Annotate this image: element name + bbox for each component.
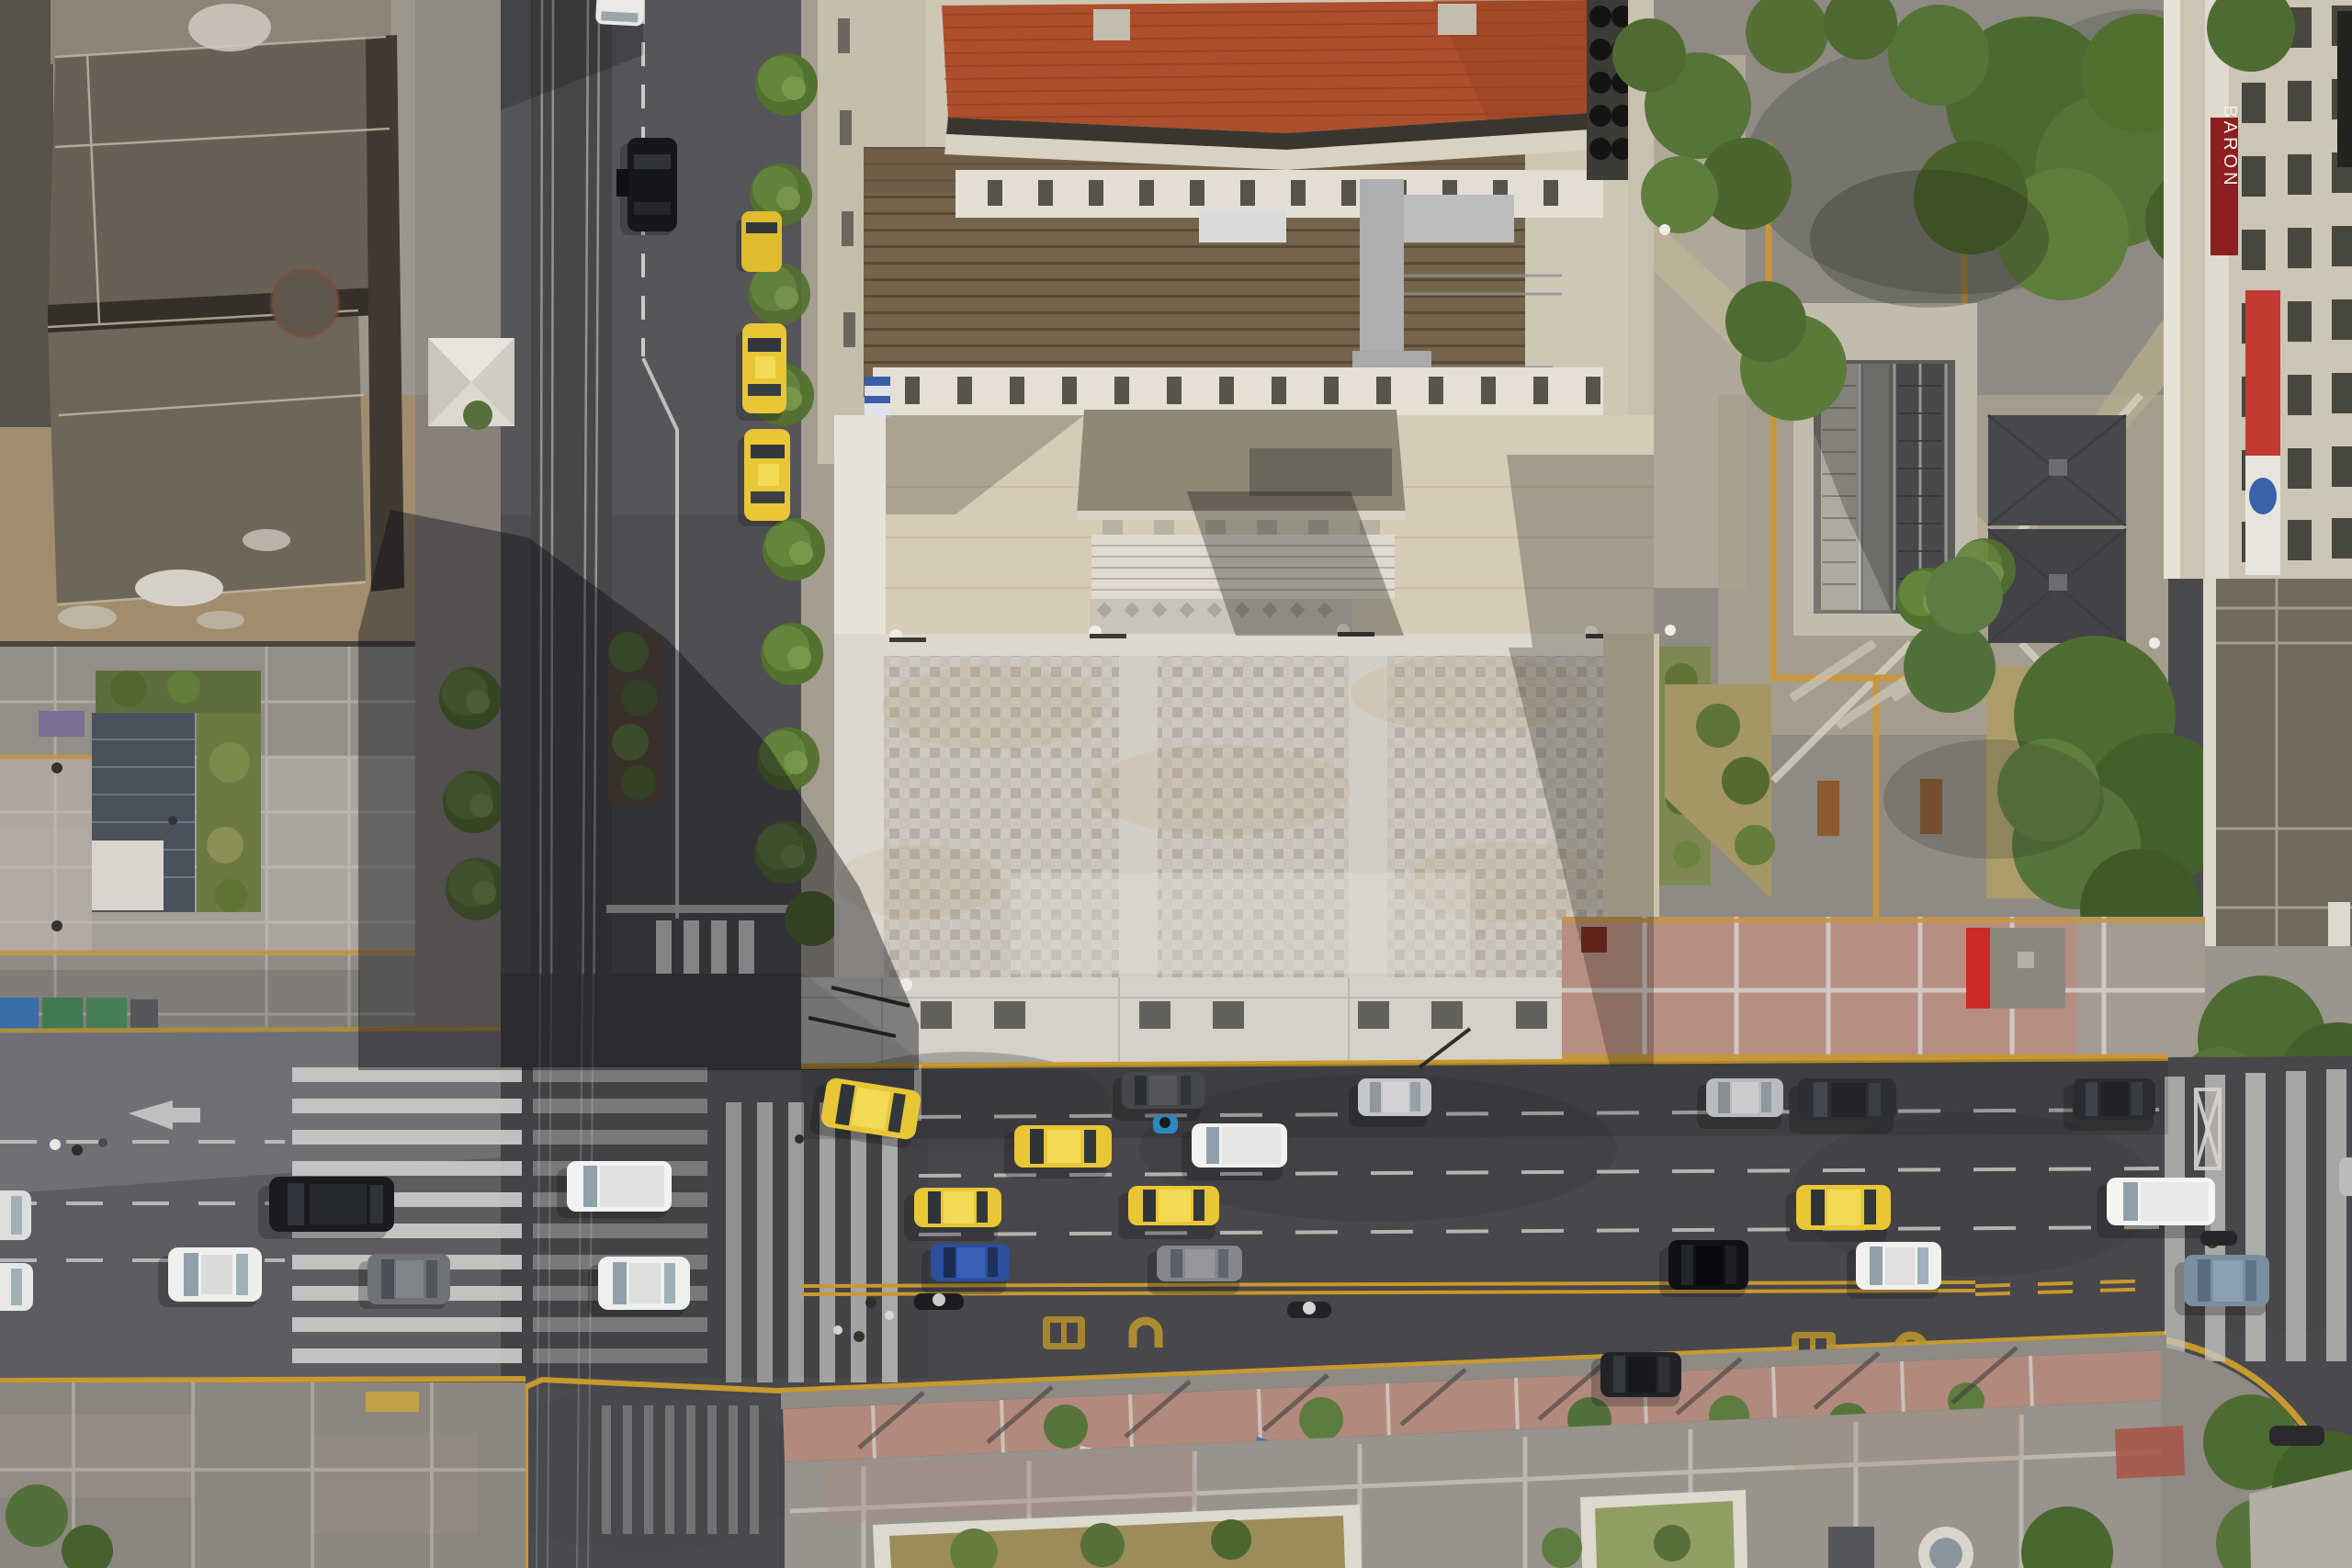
svg-text:BARON: BARON [2220,105,2240,188]
